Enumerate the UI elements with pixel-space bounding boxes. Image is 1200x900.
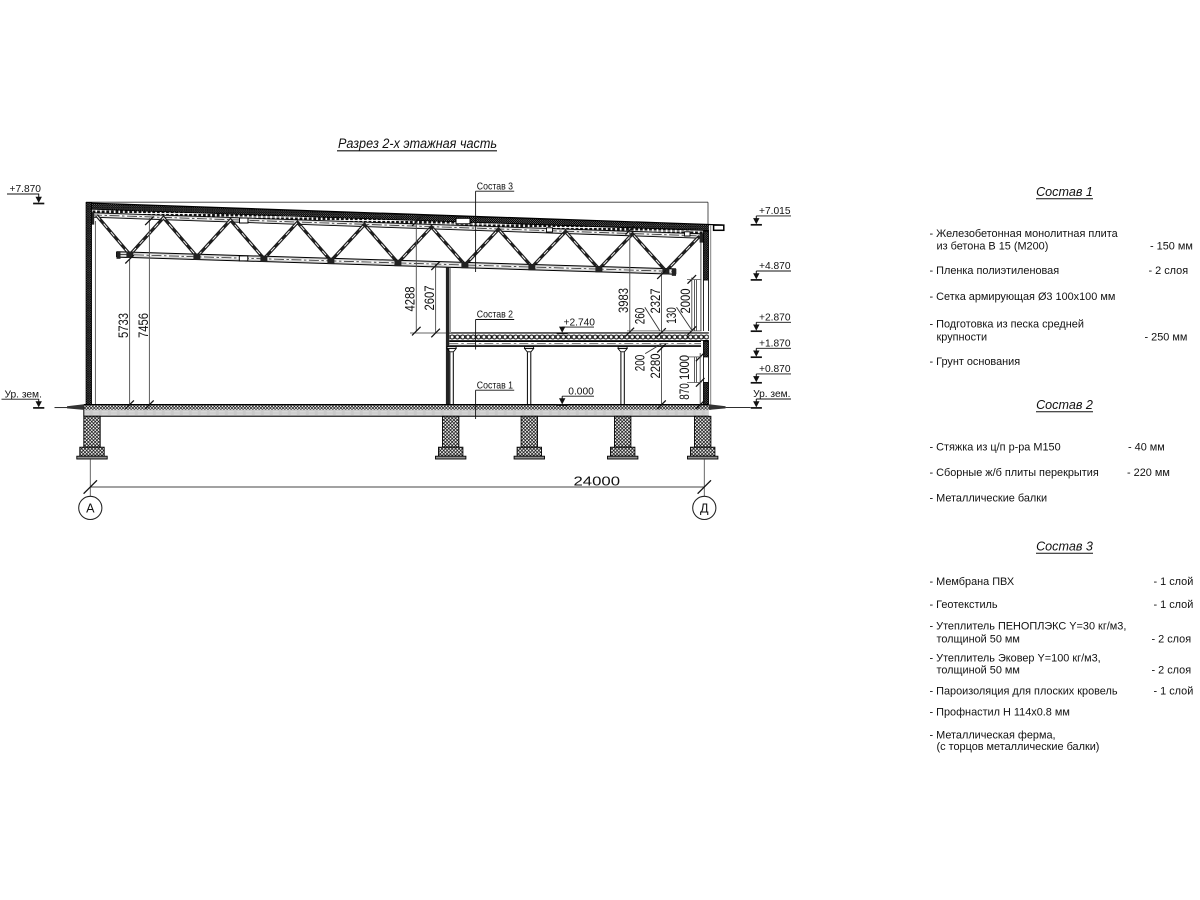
svg-text:- 1 слой: - 1 слой — [1154, 599, 1194, 611]
svg-text:толщиной 50 мм: толщиной 50 мм — [937, 665, 1020, 677]
svg-text:2607: 2607 — [422, 286, 437, 311]
svg-text:- Металлические балки: - Металлические балки — [930, 493, 1048, 505]
svg-text:- Подготовка из песка средней: - Подготовка из песка средней — [930, 319, 1084, 331]
svg-text:- 220 мм: - 220 мм — [1127, 467, 1170, 479]
svg-text:- Сборные ж/б плиты перекрытия: - Сборные ж/б плиты перекрытия — [930, 467, 1099, 479]
svg-text:Состав 1: Состав 1 — [477, 380, 513, 391]
svg-text:- Грунт основания: - Грунт основания — [930, 356, 1021, 368]
svg-text:- 1 слой: - 1 слой — [1154, 686, 1194, 698]
svg-text:- Мембрана ПВХ: - Мембрана ПВХ — [930, 576, 1015, 588]
svg-text:Д: Д — [700, 501, 709, 515]
svg-text:24000: 24000 — [574, 473, 621, 488]
svg-text:А: А — [86, 501, 95, 515]
svg-text:200: 200 — [633, 355, 648, 372]
svg-text:2327: 2327 — [648, 289, 663, 314]
svg-text:0.000: 0.000 — [568, 386, 594, 397]
svg-text:- 150 мм: - 150 мм — [1150, 241, 1193, 253]
svg-text:7456: 7456 — [136, 313, 151, 338]
svg-text:4288: 4288 — [403, 287, 418, 312]
svg-text:260: 260 — [632, 308, 647, 325]
svg-text:Разрез 2-х этажная часть: Разрез 2-х этажная часть — [338, 136, 497, 152]
svg-text:- Профнастил Н 114х0.8 мм: - Профнастил Н 114х0.8 мм — [930, 707, 1070, 719]
svg-text:3983: 3983 — [616, 288, 631, 313]
svg-text:870: 870 — [677, 383, 692, 400]
svg-text:5733: 5733 — [116, 313, 131, 338]
svg-text:(с торцов металлические балки): (с торцов металлические балки) — [937, 741, 1100, 753]
svg-text:Состав 3: Состав 3 — [477, 181, 513, 192]
svg-text:- Утеплитель ПЕНОПЛЭКС Y=30 кг: - Утеплитель ПЕНОПЛЭКС Y=30 кг/м3, — [930, 621, 1127, 633]
svg-text:из бетона В 15 (М200): из бетона В 15 (М200) — [937, 241, 1049, 253]
svg-text:2280: 2280 — [648, 354, 663, 379]
svg-text:Состав 2: Состав 2 — [477, 310, 513, 321]
svg-text:- Пароизоляция для плоских кро: - Пароизоляция для плоских кровель — [930, 686, 1118, 698]
svg-text:- 1 слой: - 1 слой — [1154, 576, 1194, 588]
svg-text:- Стяжка из ц/п р-ра М150: - Стяжка из ц/п р-ра М150 — [930, 442, 1061, 454]
svg-text:1000: 1000 — [677, 355, 692, 380]
svg-text:- Железобетонная монолитная п: - Железобетонная монолитная плита — [930, 228, 1119, 240]
svg-text:- 2 слоя: - 2 слоя — [1152, 634, 1192, 646]
svg-text:2000: 2000 — [678, 289, 693, 314]
svg-text:- Металлическая ферма,: - Металлическая ферма, — [930, 730, 1056, 742]
svg-text:- Утеплитель Эковер Y=100 кг/м: - Утеплитель Эковер Y=100 кг/м3, — [930, 653, 1101, 665]
svg-text:- 2 слоя: - 2 слоя — [1149, 265, 1189, 277]
svg-text:- 250 мм: - 250 мм — [1145, 332, 1188, 344]
svg-text:Состав 3: Состав 3 — [1036, 540, 1093, 554]
svg-text:Состав 1: Состав 1 — [1036, 185, 1093, 199]
svg-text:Ур. зем.: Ур. зем. — [5, 389, 42, 400]
svg-text:130: 130 — [664, 307, 679, 324]
svg-text:- Геотекстиль: - Геотекстиль — [930, 599, 998, 611]
svg-text:- 40 мм: - 40 мм — [1128, 442, 1165, 454]
svg-text:Состав 2: Состав 2 — [1036, 398, 1093, 412]
svg-text:- Сетка армирующая Ø3 100х100: - Сетка армирующая Ø3 100х100 мм — [930, 291, 1116, 303]
svg-text:толщиной 50 мм: толщиной 50 мм — [937, 634, 1020, 646]
svg-text:- 2 слоя: - 2 слоя — [1152, 665, 1192, 677]
svg-text:крупности: крупности — [937, 332, 988, 344]
svg-text:- Пленка полиэтиленовая: - Пленка полиэтиленовая — [930, 265, 1060, 277]
